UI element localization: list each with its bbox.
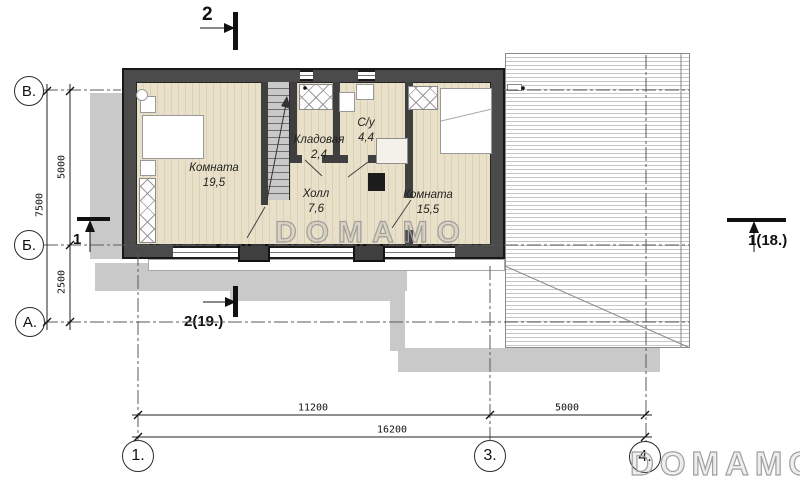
dim-11200: 11200 xyxy=(298,403,328,414)
shadow-roof-left xyxy=(390,291,405,351)
shower xyxy=(376,138,408,164)
axis-label: 1. xyxy=(131,447,144,465)
room-label-1: Комната 19,5 xyxy=(189,161,239,191)
room-name: Кладовая xyxy=(294,133,345,148)
sink xyxy=(339,92,355,112)
room-area: 7,6 xyxy=(303,202,330,217)
wardrobe-room2 xyxy=(408,86,438,110)
section-label-bottom: 2(19.) xyxy=(184,313,223,330)
room-area: 19,5 xyxy=(189,176,239,191)
room-label-2: Комната 15,5 xyxy=(403,188,453,218)
shadow-left xyxy=(90,93,122,259)
shadow-under-roof xyxy=(398,348,660,372)
room-name: С/у xyxy=(357,116,374,131)
dim-2500: 2500 xyxy=(57,270,68,294)
section-label-left: 1 xyxy=(73,231,81,248)
room-area: 4,4 xyxy=(357,131,374,146)
watermark-corner: DOMAMO xyxy=(630,445,800,482)
axis-label: 3. xyxy=(483,447,496,465)
washer xyxy=(356,84,374,100)
wall-room1-right xyxy=(261,82,268,205)
dim-5000-h: 5000 xyxy=(555,403,579,414)
axis-circle-3: 3. xyxy=(474,440,506,472)
window-top-2 xyxy=(358,70,375,81)
axis-label: В. xyxy=(22,83,36,100)
axis-label: Б. xyxy=(22,237,36,254)
axis-circle-1: 1. xyxy=(122,440,154,472)
floor-plan: Комната 19,5 Холл 7,6 Кладовая 2,4 С/у 4… xyxy=(0,0,800,482)
roof-plane xyxy=(505,53,690,348)
staircase xyxy=(268,82,290,200)
axis-circle-b: Б. xyxy=(14,230,44,260)
section-label-top: 2 xyxy=(202,4,213,26)
nightstand-bottom xyxy=(140,160,156,176)
room-name: Комната xyxy=(403,188,453,203)
wardrobe-kladovaya xyxy=(299,84,333,110)
room-area: 2,4 xyxy=(294,148,345,163)
room-name: Комната xyxy=(189,161,239,176)
bed-room2 xyxy=(440,88,492,154)
porch-deck xyxy=(148,259,505,271)
room-label-su: С/у 4,4 xyxy=(357,116,374,146)
axis-label: А. xyxy=(23,314,37,331)
window-bottom-1 xyxy=(173,246,240,259)
pier-1 xyxy=(238,244,270,262)
roof-vent xyxy=(507,84,522,91)
shadow-under-house-step xyxy=(230,289,390,301)
dim-5000-v: 5000 xyxy=(57,155,68,179)
dim-16200: 16200 xyxy=(377,425,407,436)
section-label-right: 1(18.) xyxy=(748,232,787,249)
room-name: Холл xyxy=(303,187,330,202)
room-label-kladovaya: Кладовая 2,4 xyxy=(294,133,345,163)
watermark-center: DOMAMO xyxy=(275,216,469,250)
room-label-hall: Холл 7,6 xyxy=(303,187,330,217)
axis-circle-a: А. xyxy=(15,307,45,337)
dim-7500: 7500 xyxy=(35,193,46,217)
lamp xyxy=(136,89,148,101)
boiler xyxy=(368,173,385,191)
axis-circle-v: В. xyxy=(14,76,44,106)
bed-room1 xyxy=(142,115,204,159)
window-top-1 xyxy=(300,70,313,81)
wardrobe-room1 xyxy=(139,178,156,243)
